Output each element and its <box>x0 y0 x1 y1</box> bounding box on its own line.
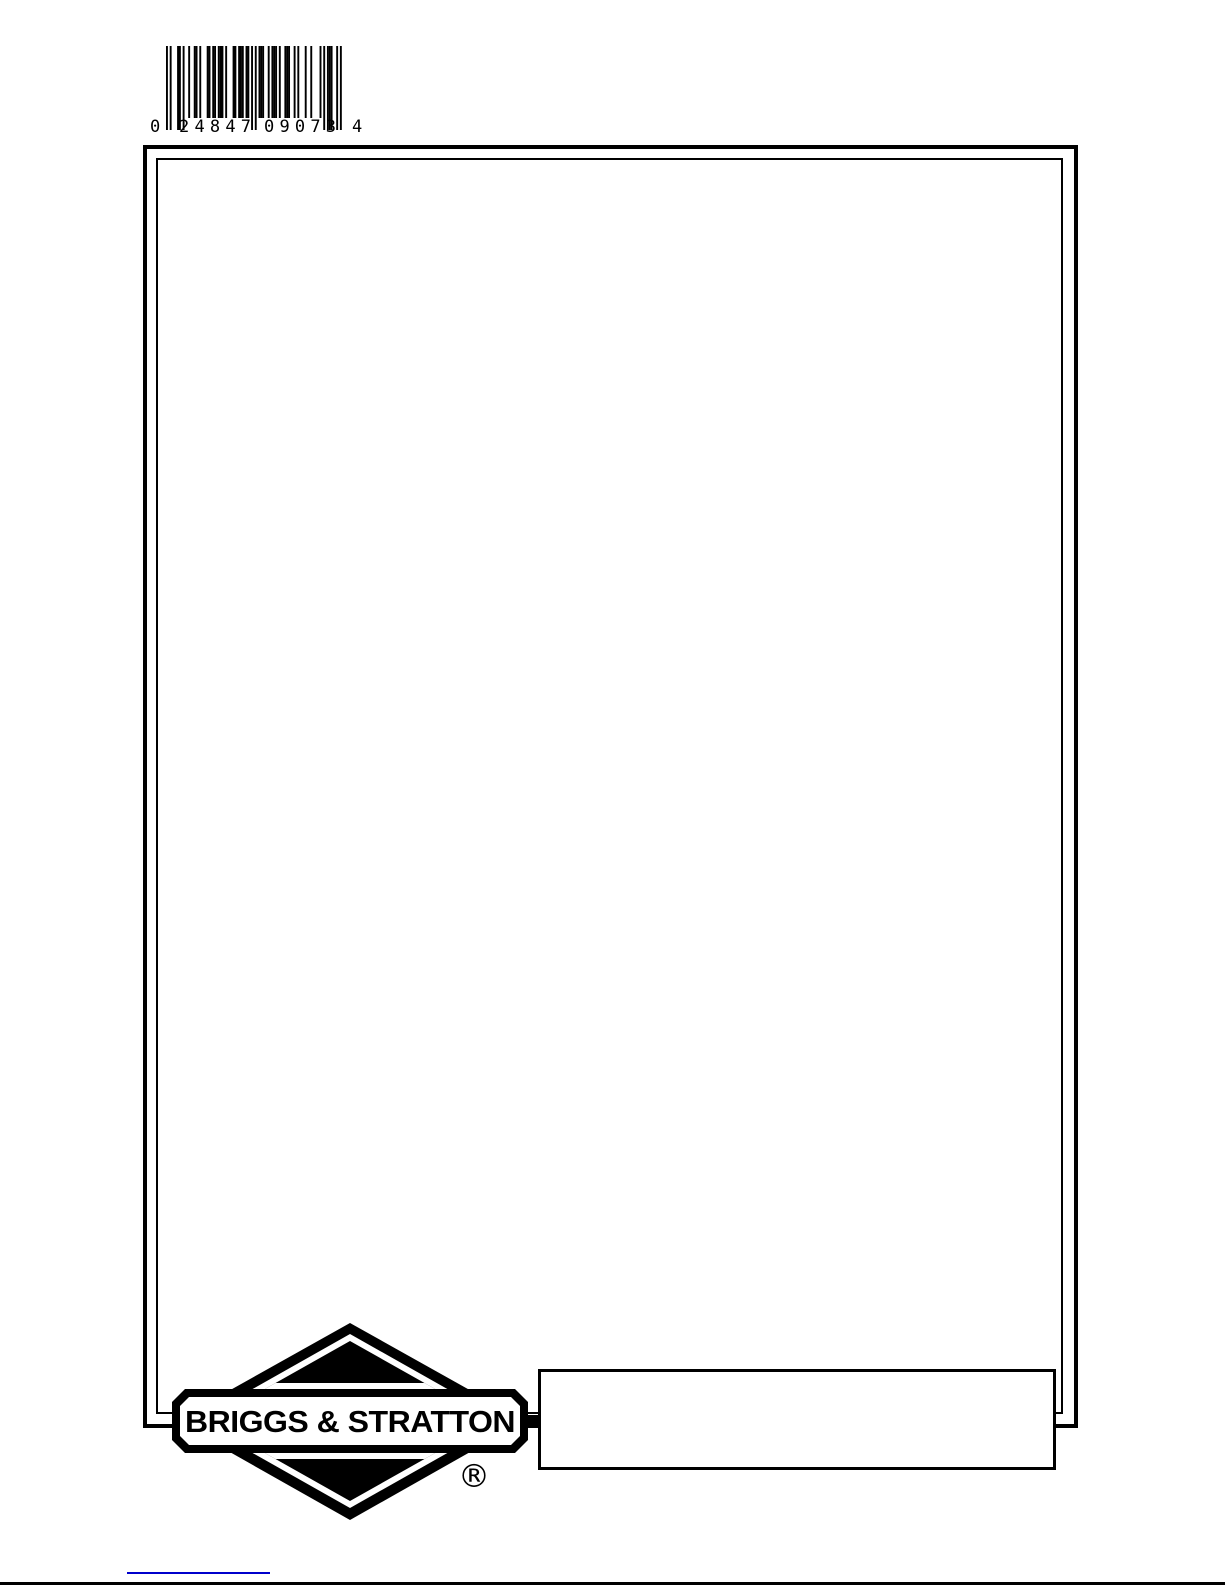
briggs-stratton-logo: BRIGGS & STRATTON ® <box>140 1317 540 1527</box>
empty-info-box <box>538 1369 1056 1470</box>
registered-trademark-icon: ® <box>458 1457 490 1495</box>
blue-underline-line <box>127 1572 270 1574</box>
upc-barcode: 0 24847 09073 4 <box>146 42 366 138</box>
barcode-check-digit: 4 <box>352 117 362 137</box>
logo-brand-text: BRIGGS & STRATTON <box>185 1404 515 1439</box>
page-border-inner <box>156 158 1063 1414</box>
barcode-left-digit-group: 24847 <box>179 117 251 137</box>
barcode-right-digit-group: 09073 <box>264 117 336 137</box>
barcode-number-system-digit: 0 <box>150 117 160 137</box>
